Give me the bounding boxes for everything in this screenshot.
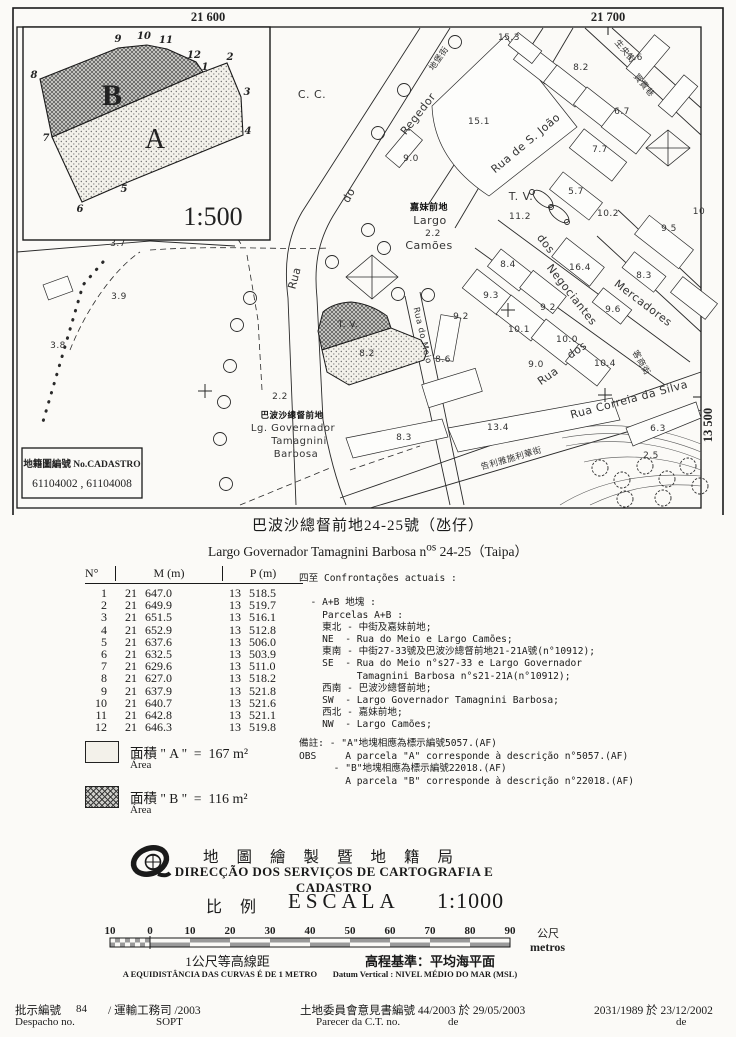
map-label: Largo xyxy=(413,214,446,227)
scalebar-check xyxy=(140,943,145,948)
map-label: Barbosa xyxy=(274,449,318,460)
footer-text: Parecer da C.T. no. xyxy=(316,1016,400,1028)
cadastro-numbers: 61104002 , 61104008 xyxy=(32,478,132,490)
title-pt-rest: 24-25（Taipa） xyxy=(436,544,528,559)
scalebar-check xyxy=(110,943,115,948)
scalebar-seg xyxy=(310,943,350,948)
table-cell: 21 651.5 xyxy=(107,611,213,623)
map-label: 7.6 xyxy=(627,53,643,63)
map-label: 8.6 xyxy=(435,355,451,365)
cadastral-plan-page: 21 600 21 700 13 500 C. C.RegedordoRua地堡… xyxy=(0,0,736,1037)
text-line: NE - Rua do Meio e Largo Camões; xyxy=(299,634,595,646)
map-label: 6.7 xyxy=(614,107,630,117)
building xyxy=(43,276,73,300)
footer-text: de xyxy=(676,1016,686,1028)
pavilion-x xyxy=(346,255,398,299)
text-line xyxy=(299,585,595,597)
map-label: 10 xyxy=(693,207,705,217)
coordinate-table-header: N° M (m) P (m) xyxy=(85,566,303,584)
scalebar-seg xyxy=(470,943,510,948)
map-label: T. V. xyxy=(508,190,534,203)
text-line: 西南 - 巴波沙總督前地; xyxy=(299,683,595,695)
map-label: 10.2 xyxy=(597,209,619,219)
map-label: 8.3 xyxy=(396,433,412,443)
text-line: 東南 - 中街27-33號及巴波沙總督前地21-21A號(n°10912); xyxy=(299,646,595,658)
map-label: 8.2 xyxy=(359,349,375,359)
plan-title-portuguese: Largo Governador Tamagnini Barbosa nos 2… xyxy=(0,540,736,560)
cadastral-map: 21 600 21 700 13 500 C. C.RegedordoRua地堡… xyxy=(0,0,736,515)
tree-icon xyxy=(326,256,339,269)
scalebar-seg xyxy=(150,943,190,948)
scalebar-check xyxy=(135,938,140,943)
tree-icon xyxy=(614,472,630,488)
table-cell: 13 516.1 xyxy=(213,611,276,623)
observations-block: 備註: - "A"地塊相應為標示編號5057.(AF)OBS A parcela… xyxy=(299,738,634,788)
table-cell: 8 xyxy=(85,672,107,684)
confrontations-block: 四至 Confrontações actuais : - A+B 地塊 : Pa… xyxy=(299,573,595,732)
map-label: 客商街 xyxy=(630,348,653,377)
table-cell: 13 518.2 xyxy=(213,672,276,684)
vertex-number: 5 xyxy=(121,184,128,195)
vertex-number: 3 xyxy=(244,87,251,98)
scalebar-tick: 80 xyxy=(465,925,477,937)
scalebar-tick: 30 xyxy=(265,925,277,937)
map-label: 3.8 xyxy=(50,341,66,351)
street-edge xyxy=(17,241,150,252)
tree-icon xyxy=(224,360,237,373)
vertex-number: 9 xyxy=(115,34,122,45)
table-row: 821 627.013 518.2 xyxy=(85,672,303,684)
table-cell: 3 xyxy=(85,611,107,623)
map-label: 9.5 xyxy=(661,224,677,234)
map-label: 告利雅施利華街 xyxy=(480,445,544,473)
footer-text: de xyxy=(448,1016,458,1028)
col-header-m: M (m) xyxy=(116,566,223,581)
inset-1-500: B A 1:500 123456789101112 xyxy=(23,27,270,240)
cadastro-label: 地籍圖編號 No.CADASTRO xyxy=(23,458,140,470)
scalebar-tick: 40 xyxy=(305,925,317,937)
table-cell: 13 521.8 xyxy=(213,685,276,697)
map-label: do xyxy=(340,186,358,205)
coordinate-table: N° M (m) P (m) 121 647.013 518.5221 649.… xyxy=(85,566,303,733)
table-row: 321 651.513 516.1 xyxy=(85,611,303,623)
map-label: dos xyxy=(534,232,557,257)
text-line: SW - Largo Governador Tamagnini Barbosa; xyxy=(299,695,595,707)
tree-icon xyxy=(449,36,462,49)
plan-title-chinese: 巴波沙總督前地24-25號（氹仔） xyxy=(0,514,736,535)
table-row: 921 637.913 521.8 xyxy=(85,685,303,697)
scalebar-check xyxy=(115,938,120,943)
map-label: 巴波沙總督前地 xyxy=(260,410,323,421)
map-label: Tamagnini xyxy=(270,436,327,447)
scalebar-tick: 10 xyxy=(105,925,117,937)
inset-label-a: A xyxy=(145,124,166,155)
scalebar-tick: 10 xyxy=(185,925,197,937)
map-label: 15.3 xyxy=(498,33,520,43)
table-cell: 21 652.9 xyxy=(107,624,213,636)
scalebar-tick: 0 xyxy=(147,925,153,937)
col-header-n: N° xyxy=(85,566,116,581)
table-row: 1221 646.313 519.8 xyxy=(85,721,303,733)
map-label: 9.0 xyxy=(528,360,544,370)
map-label: 10.1 xyxy=(508,325,530,335)
tree-icon xyxy=(220,478,233,491)
map-label: 3.9 xyxy=(111,292,127,302)
map-label: 地堡街 xyxy=(427,44,452,72)
map-label: 嘉妹前地 xyxy=(409,201,448,213)
map-label: C. C. xyxy=(298,88,326,101)
coordinate-table-rows: 121 647.013 518.5221 649.913 519.7321 65… xyxy=(85,584,303,733)
text-line: NW - Largo Camões; xyxy=(299,719,595,731)
map-label: Lg. Governador xyxy=(251,423,336,434)
map-label: 7.7 xyxy=(592,145,608,155)
vertex-number: 4 xyxy=(245,126,252,137)
text-line: 西北 - 嘉妹前地; xyxy=(299,707,595,719)
equidistance-portuguese: A EQUIDISTÂNCIA DAS CURVAS É DE 1 METRO xyxy=(95,969,345,979)
street-edge xyxy=(150,241,235,246)
vertex-number: 2 xyxy=(226,52,234,63)
text-line: - "B"地塊相應為標示編號22018.(AF) xyxy=(299,763,634,776)
footer-text: SOPT xyxy=(156,1016,183,1028)
equidistance-chinese: 1公尺等高線距 xyxy=(120,951,335,970)
pavilion-x xyxy=(646,130,690,166)
fountain xyxy=(546,202,571,226)
table-cell: 12 xyxy=(85,721,107,733)
map-label: 5.7 xyxy=(568,187,584,197)
scalebar-seg xyxy=(430,938,470,943)
scale-label-chinese: 比 例 xyxy=(206,893,263,917)
tree-icon xyxy=(422,289,435,302)
table-cell: 21 627.0 xyxy=(107,672,213,684)
map-label: 8.3 xyxy=(636,271,652,281)
footer-text: 2031/1989 於 23/12/2002 xyxy=(594,1002,713,1018)
building xyxy=(671,277,718,320)
scalebar-tick: 50 xyxy=(345,925,357,937)
scale-word: ESCALA xyxy=(288,889,400,914)
scalebar-check xyxy=(125,938,130,943)
area-b-sub: Área xyxy=(130,804,151,816)
table-cell: 21 637.9 xyxy=(107,685,213,697)
title-pt-prefix: Largo Governador Tamagnini Barbosa n xyxy=(208,544,426,559)
map-label: 6.3 xyxy=(650,424,666,434)
map-label: 10.4 xyxy=(594,359,616,369)
map-label: 9.2 xyxy=(540,303,556,313)
fountain-dot xyxy=(565,220,570,225)
boundary-dashed xyxy=(247,255,262,390)
map-label: 16.4 xyxy=(569,263,591,273)
vertex-number: 6 xyxy=(77,204,84,215)
building xyxy=(422,368,483,407)
vertex-number: 12 xyxy=(187,50,201,61)
map-label: 8.4 xyxy=(500,260,516,270)
vertex-number: 1 xyxy=(202,62,209,73)
datum-portuguese: Datum Vertical : NIVEL MÉDIO DO MAR (MSL… xyxy=(320,969,530,979)
vertex-number: 11 xyxy=(159,35,173,46)
scalebar-tick: 70 xyxy=(425,925,437,937)
text-line: Parcelas A+B : xyxy=(299,610,595,622)
vertex-number: 7 xyxy=(43,133,50,144)
map-label: 2.2 xyxy=(272,392,288,402)
table-row: 421 652.913 512.8 xyxy=(85,624,303,636)
area-a-value: 167 m² xyxy=(202,747,249,762)
scalebar-check xyxy=(130,943,135,948)
text-line: A parcela "B" corresponde à descrição n°… xyxy=(299,776,634,789)
area-b-swatch xyxy=(85,786,119,808)
scalebar-seg xyxy=(190,938,230,943)
tree-icon xyxy=(655,490,671,506)
text-line: Tamagnini Barbosa n°s21-21A(n°10912); xyxy=(299,671,595,683)
inset-label-b: B xyxy=(102,79,122,112)
map-label: Camões xyxy=(405,239,452,252)
title-pt-sup: os xyxy=(426,542,436,554)
scale-value: 1:1000 xyxy=(437,888,504,914)
scalebar-seg xyxy=(270,938,310,943)
table-cell: 21 646.3 xyxy=(107,721,213,733)
inset-scale: 1:500 xyxy=(183,202,242,231)
map-label: 2.2 xyxy=(425,229,441,239)
contour xyxy=(560,475,701,505)
grid-label-13500: 13 500 xyxy=(701,408,715,442)
footer-text: 84 xyxy=(76,1003,87,1015)
table-cell: 13 512.8 xyxy=(213,624,276,636)
scalebar-tick: 60 xyxy=(385,925,397,937)
area-a-sub: Área xyxy=(130,759,151,771)
map-label: T. V. xyxy=(337,320,359,330)
scalebar-seg xyxy=(390,943,430,948)
scalebar-seg xyxy=(350,938,390,943)
table-cell: 4 xyxy=(85,624,107,636)
footer-text: Despacho no. xyxy=(15,1016,75,1028)
map-label: 8.2 xyxy=(573,63,589,73)
text-line: SE - Rua do Meio n°s27-33 e Largo Govern… xyxy=(299,658,595,670)
tree-icon xyxy=(398,84,411,97)
contour xyxy=(590,485,701,505)
footer-text: / 運輸工務司 /2003 xyxy=(108,1002,201,1018)
text-line: 備註: - "A"地塊相應為標示編號5057.(AF) xyxy=(299,738,634,751)
map-label: 15.1 xyxy=(468,117,490,127)
survey-cross-icon xyxy=(198,384,212,398)
tree-icon xyxy=(231,319,244,332)
text-line: - A+B 地塊 : xyxy=(299,597,595,609)
table-cell: 9 xyxy=(85,685,107,697)
boundary-dashed xyxy=(150,248,330,250)
scalebar-tick: 20 xyxy=(225,925,237,937)
area-b-value: 116 m² xyxy=(202,792,248,807)
area-a-swatch xyxy=(85,741,119,763)
scalebar-check xyxy=(145,938,150,943)
grid-label-21700: 21 700 xyxy=(591,10,625,24)
vertex-number: 10 xyxy=(137,31,151,42)
text-line: OBS A parcela "A" corresponde à descriçã… xyxy=(299,751,634,764)
boundary-dashed xyxy=(240,468,330,505)
map-label: Rua xyxy=(285,266,303,291)
area-b-eq: " B " = xyxy=(157,791,202,806)
scalebar-unit-zh: 公尺 xyxy=(537,928,559,940)
col-header-p: P (m) xyxy=(223,566,303,581)
grid-label-21600: 21 600 xyxy=(191,10,225,24)
tree-icon xyxy=(214,433,227,446)
table-cell: 13 519.8 xyxy=(213,721,276,733)
scalebar-seg xyxy=(230,943,270,948)
tree-icon xyxy=(372,127,385,140)
scalebar-unit-pt: metros xyxy=(530,940,565,954)
tree-icon xyxy=(659,471,675,487)
map-label: 9.2 xyxy=(453,312,469,322)
datum-chinese: 高程基準：平均海平面 xyxy=(340,951,520,970)
boundary-dashed xyxy=(70,252,140,350)
tree-icon xyxy=(592,460,608,476)
map-label: 2.5 xyxy=(643,451,659,461)
tree-icon xyxy=(392,288,405,301)
text-line: 四至 Confrontações actuais : xyxy=(299,573,595,585)
tree-icon xyxy=(378,242,391,255)
map-label: 9.3 xyxy=(483,291,499,301)
tree-icon xyxy=(362,224,375,237)
cadastro-number-box: 地籍圖編號 No.CADASTRO 61104002 , 61104008 xyxy=(22,448,142,498)
text-line: 東北 - 中街及嘉妹前地; xyxy=(299,622,595,634)
building xyxy=(658,75,698,117)
map-label: 9.6 xyxy=(605,305,621,315)
scalebar-check xyxy=(120,943,125,948)
map-label: 9.0 xyxy=(403,154,419,164)
map-label: 11.2 xyxy=(509,212,531,222)
scalebar-tick: 90 xyxy=(505,925,517,937)
map-label: 13.4 xyxy=(487,423,509,433)
tree-icon xyxy=(218,396,231,409)
area-a-eq: " A " = xyxy=(157,746,202,761)
subject-parcels xyxy=(318,302,427,385)
vertex-number: 8 xyxy=(31,70,38,81)
